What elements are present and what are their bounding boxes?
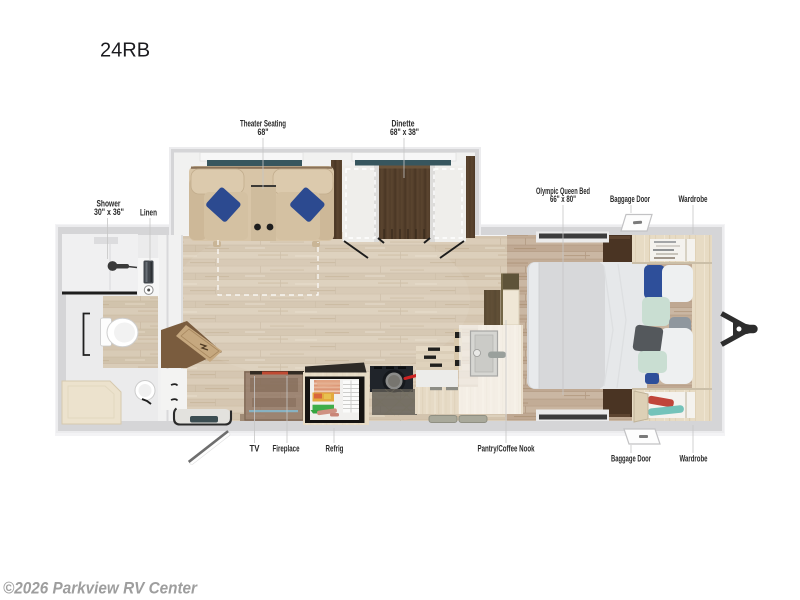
svg-text:Baggage Door: Baggage Door xyxy=(611,454,651,464)
svg-text:Wardrobe: Wardrobe xyxy=(680,454,708,464)
svg-text:68" x 38": 68" x 38" xyxy=(390,127,419,137)
svg-text:Baggage Door: Baggage Door xyxy=(610,194,650,204)
svg-text:68": 68" xyxy=(258,127,269,137)
svg-text:30" x 36": 30" x 36" xyxy=(94,207,124,217)
svg-text:66" x 80": 66" x 80" xyxy=(550,194,576,204)
svg-text:Fireplace: Fireplace xyxy=(273,444,300,454)
svg-text:Refrig: Refrig xyxy=(326,444,344,454)
svg-text:TV: TV xyxy=(250,444,260,454)
svg-text:Linen: Linen xyxy=(140,208,157,218)
svg-text:Pantry/Coffee Nook: Pantry/Coffee Nook xyxy=(478,444,536,454)
svg-text:©2026 Parkview RV Center: ©2026 Parkview RV Center xyxy=(3,580,198,598)
svg-text:Wardrobe: Wardrobe xyxy=(679,194,708,204)
svg-text:24RB: 24RB xyxy=(100,40,150,62)
